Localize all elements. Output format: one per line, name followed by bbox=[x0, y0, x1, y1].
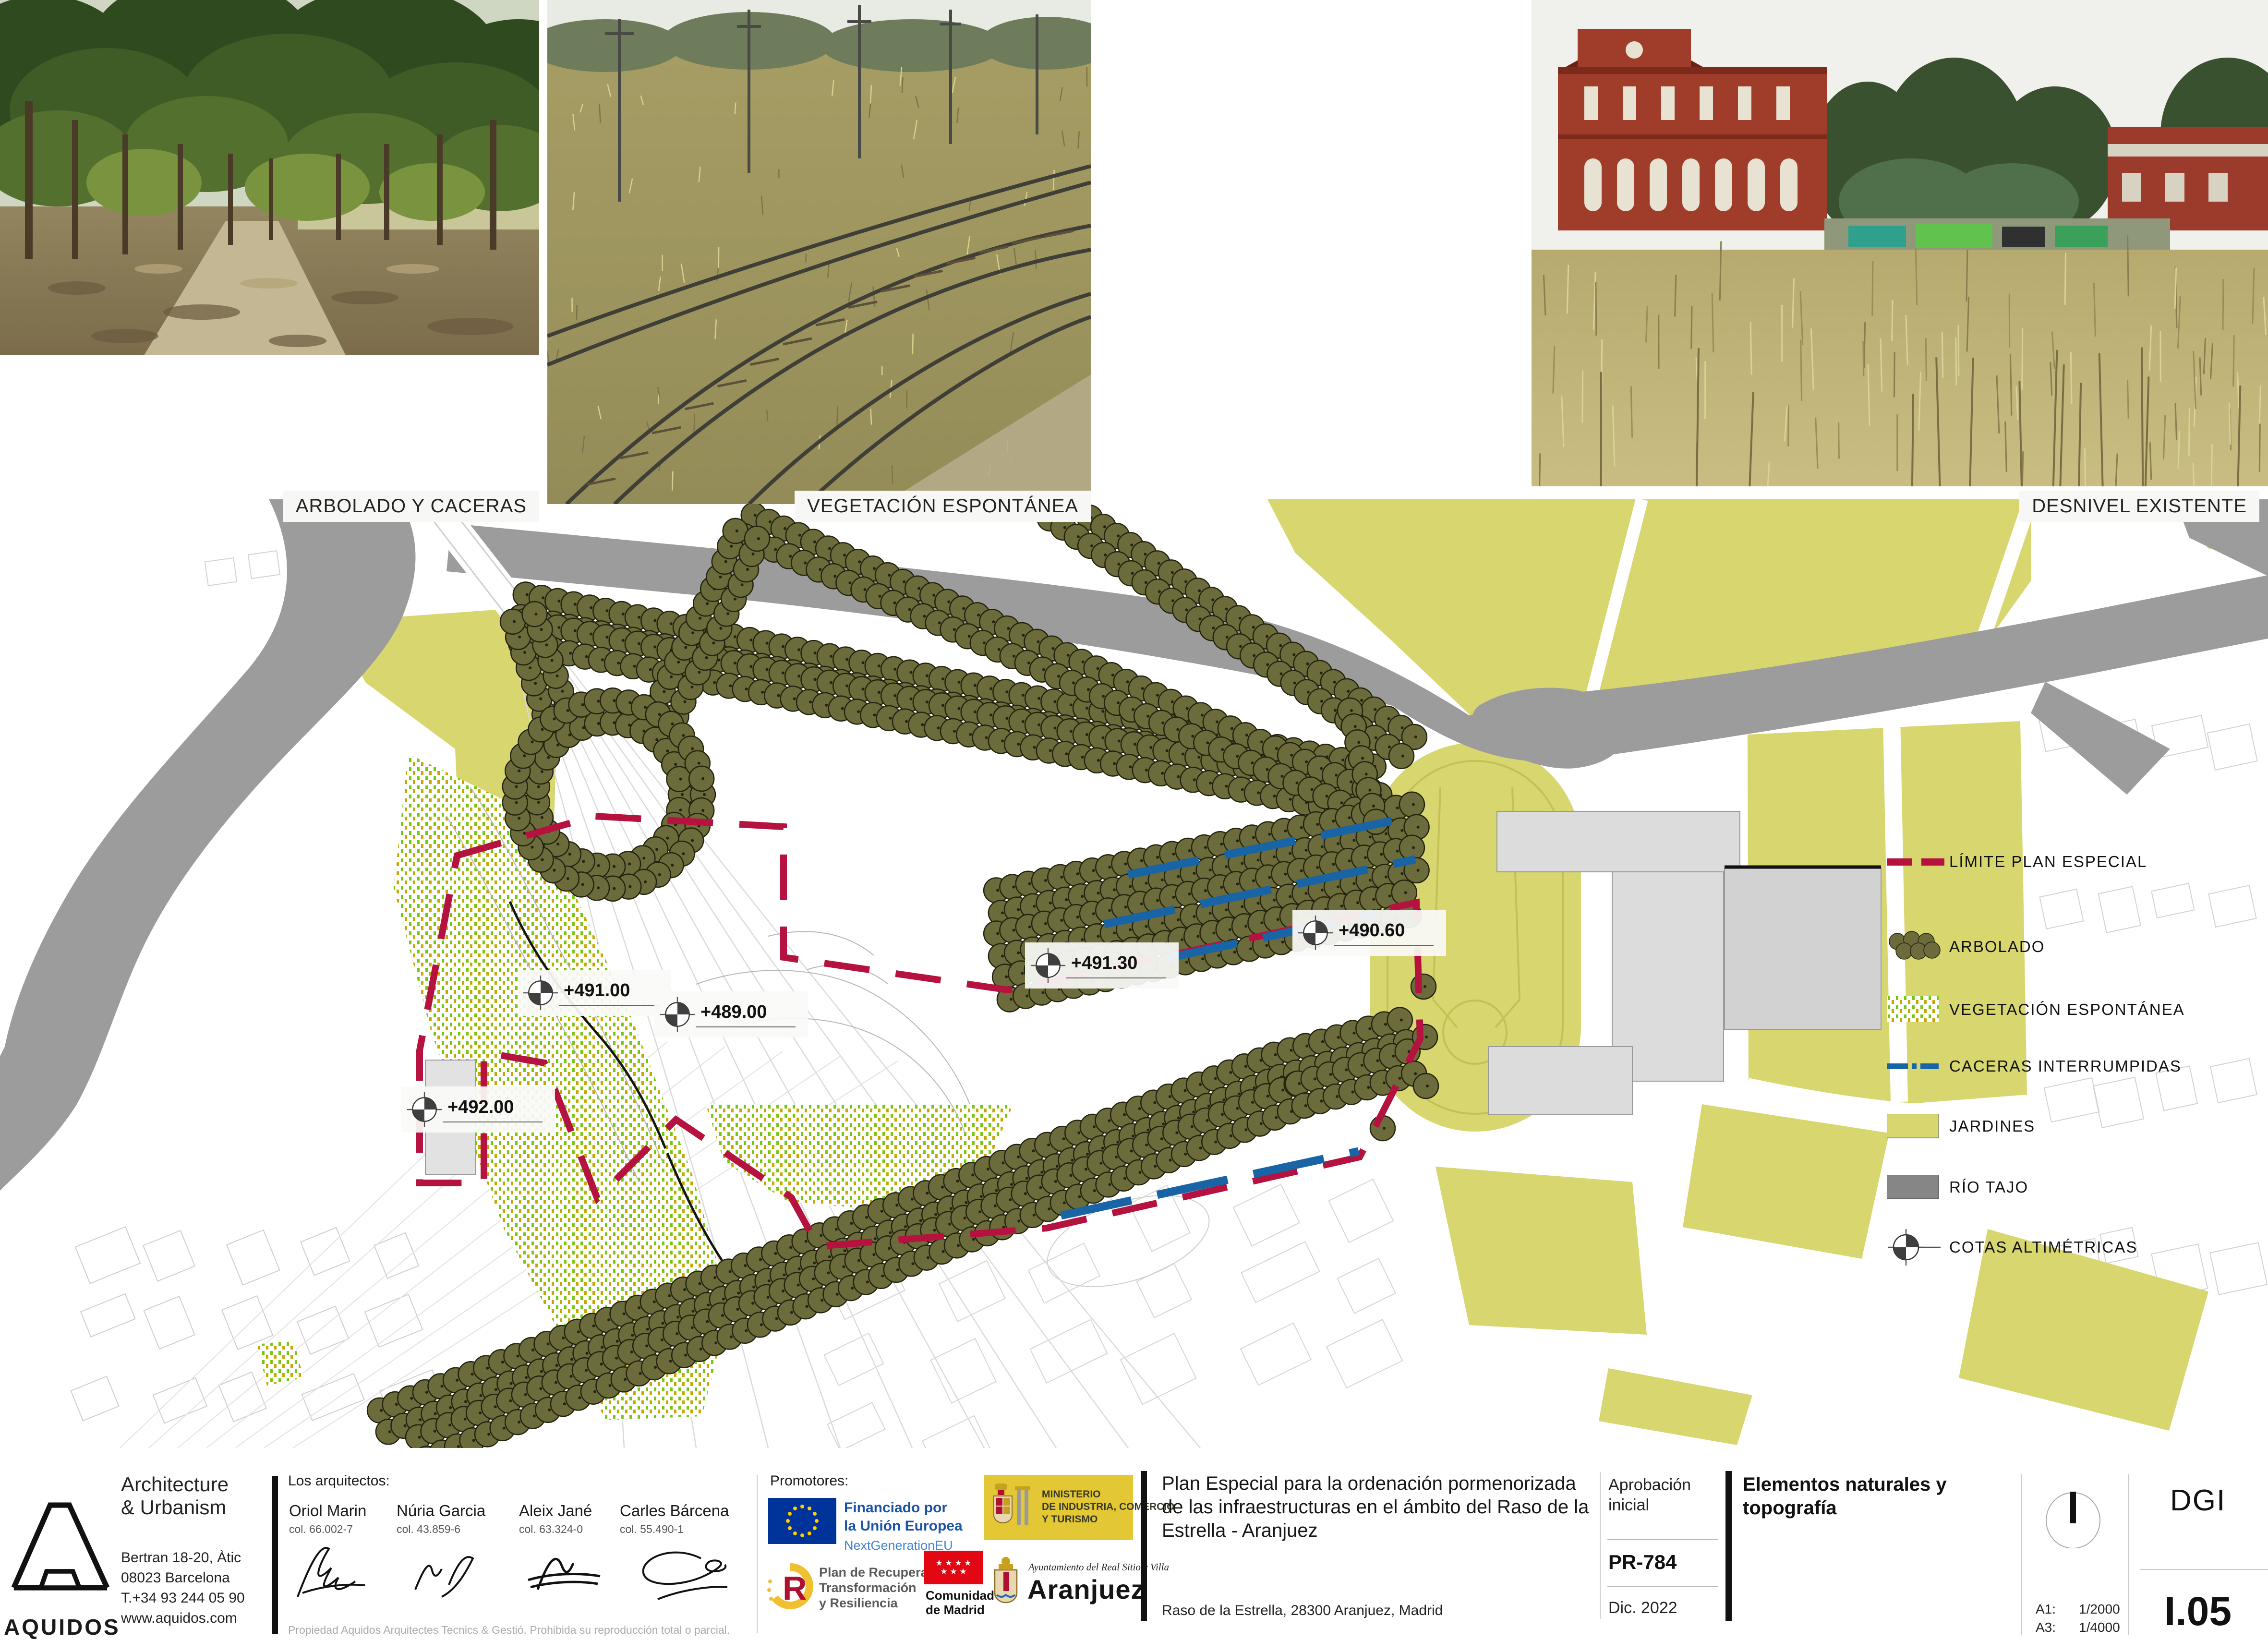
architect-college: col. 43.859-6 bbox=[397, 1523, 460, 1536]
vegetacion-swatch-icon bbox=[1887, 995, 1949, 1024]
scale-a3-label: A3: bbox=[2036, 1620, 2056, 1635]
legend-item-jardines: JARDINES bbox=[1887, 1107, 2035, 1146]
series-divider bbox=[2140, 1569, 2268, 1570]
aquidos-logo-icon bbox=[7, 1476, 110, 1620]
aranjuez-crest-icon bbox=[989, 1555, 1023, 1611]
photo-caption-vegetacion: VEGETACIÓN ESPONTÁNEA bbox=[795, 491, 1091, 522]
limite-swatch-icon bbox=[1887, 856, 1949, 868]
firm-phone: T.+34 93 244 05 90 bbox=[121, 1590, 245, 1606]
firm-address-2: 08023 Barcelona bbox=[121, 1570, 230, 1586]
photo-caption-arbolado: ARBOLADO Y CACERAS bbox=[283, 491, 539, 522]
photo-vegetacion-espontanea bbox=[547, 0, 1091, 504]
copyright-disclaimer: Propiedad Aquidos Arquitectes Tecnics & … bbox=[288, 1624, 730, 1637]
architect-college: col. 63.324-0 bbox=[519, 1523, 583, 1536]
comunidad-madrid-logo-icon: ★ ★ ★ ★★ ★ ★ bbox=[924, 1551, 983, 1584]
scale-a3-value: 1/4000 bbox=[2079, 1620, 2120, 1635]
series-code: DGI bbox=[2170, 1483, 2226, 1518]
project-title: Plan Especial para la ordenación pormeno… bbox=[1162, 1472, 1594, 1543]
ministry-line2: DE INDUSTRIA, COMERCIO bbox=[1042, 1501, 1175, 1513]
signature-icon bbox=[293, 1539, 384, 1606]
architect-name: Carles Bárcena bbox=[620, 1502, 729, 1520]
cota-symbol-icon bbox=[522, 975, 559, 1011]
madrid-line1: Comunidad bbox=[926, 1588, 994, 1603]
sheet-number: I.05 bbox=[2164, 1588, 2232, 1635]
signature-icon bbox=[523, 1546, 605, 1599]
status-divider-1 bbox=[1607, 1539, 1718, 1540]
firm-website[interactable]: www.aquidos.com bbox=[121, 1610, 237, 1627]
architect-college: col. 55.490-1 bbox=[620, 1523, 684, 1536]
jardines-swatch-icon bbox=[1887, 1114, 1949, 1139]
firm-tagline-1: Architecture bbox=[121, 1473, 229, 1496]
side-building bbox=[2108, 127, 2268, 230]
cota-symbol-icon bbox=[406, 1091, 443, 1128]
svg-text:R: R bbox=[783, 1569, 807, 1607]
divider-line-1 bbox=[757, 1475, 758, 1633]
approval-phase-line2: inicial bbox=[1608, 1496, 1649, 1515]
rio-swatch-icon bbox=[1887, 1175, 1949, 1200]
plan-sheet: ARBOLADO Y CACERAS VEGETACIÓN ESPONTÁNEA… bbox=[0, 0, 2268, 1640]
cota-492-00: +492.00 bbox=[401, 1086, 555, 1133]
cota-symbol-icon bbox=[1297, 915, 1334, 951]
project-address: Raso de la Estrella, 28300 Aranjuez, Mad… bbox=[1162, 1603, 1443, 1619]
cotas-swatch-icon bbox=[1887, 1228, 1949, 1266]
divider-bar-2 bbox=[1141, 1471, 1147, 1621]
ministry-line3: Y TURISMO bbox=[1042, 1513, 1098, 1526]
project-code: PR-784 bbox=[1608, 1551, 1677, 1574]
eu-funding-line1: Financiado por bbox=[844, 1500, 947, 1516]
scale-a1-label: A1: bbox=[2036, 1602, 2056, 1617]
architects-heading: Los arquitectos: bbox=[288, 1473, 390, 1489]
eu-flag-icon bbox=[768, 1498, 836, 1544]
title-block: AQUIDOS Architecture & Urbanism Bertran … bbox=[0, 1448, 2268, 1640]
architect-name: Núria Garcia bbox=[397, 1502, 485, 1520]
brand-name: AQUIDOS bbox=[4, 1614, 121, 1640]
plan-recuperacion-logo-icon: R bbox=[766, 1562, 814, 1612]
architect-college: col. 66.002-7 bbox=[289, 1523, 353, 1536]
photo-caption-desnivel: DESNIVEL EXISTENTE bbox=[2019, 491, 2259, 522]
north-arrow-icon bbox=[2043, 1489, 2103, 1548]
scale-a1-value: 1/2000 bbox=[2079, 1602, 2120, 1617]
signature-icon bbox=[408, 1544, 490, 1602]
eu-funding-line2: la Unión Europea bbox=[844, 1518, 963, 1534]
sheet-title: Elementos naturales y topografía bbox=[1743, 1473, 2012, 1520]
signature-icon bbox=[629, 1542, 735, 1609]
legend-item-caceras: CACERAS INTERRUMPIDAS bbox=[1887, 1047, 2182, 1085]
cota-491-00: +491.00 bbox=[518, 970, 671, 1016]
legend-item-cotas: COTAS ALTIMÉTRICAS bbox=[1887, 1228, 2137, 1266]
status-divider-2 bbox=[1607, 1586, 1718, 1587]
spain-coat-of-arms-icon bbox=[990, 1480, 1034, 1535]
divider-bar-1 bbox=[272, 1476, 278, 1634]
promoters-heading: Promotores: bbox=[770, 1473, 848, 1489]
cota-491-30: +491.30 bbox=[1025, 942, 1179, 989]
cota-symbol-icon bbox=[1030, 947, 1066, 984]
divider-bar-3 bbox=[1725, 1471, 1732, 1621]
architect-name: Aleix Jané bbox=[519, 1502, 592, 1520]
architect-name: Oriol Marin bbox=[289, 1502, 366, 1520]
photo-arbolado-caceras bbox=[0, 0, 539, 355]
madrid-line2: de Madrid bbox=[926, 1603, 985, 1617]
aranjuez-subtitle: Ayuntamiento del Real Sitio y Villa bbox=[1028, 1561, 1169, 1573]
issue-date: Dic. 2022 bbox=[1608, 1599, 1677, 1617]
legend-item-vegetacion: VEGETACIÓN ESPONTÁNEA bbox=[1887, 990, 2185, 1029]
plan-line2: Transformación bbox=[819, 1580, 917, 1595]
divider-line-3 bbox=[2021, 1474, 2022, 1635]
plan-line3: y Resiliencia bbox=[819, 1596, 898, 1611]
cota-symbol-icon bbox=[659, 996, 696, 1033]
legend-item-limite: LÍMITE PLAN ESPECIAL bbox=[1887, 843, 2147, 881]
ministry-line1: MINISTERIO bbox=[1042, 1488, 1101, 1501]
caceras-swatch-icon bbox=[1887, 1061, 1949, 1071]
firm-address-1: Bertran 18-20, Àtic bbox=[121, 1550, 241, 1566]
approval-phase-line1: Aprobación bbox=[1608, 1476, 1691, 1495]
cota-490-60: +490.60 bbox=[1292, 910, 1446, 956]
divider-line-2 bbox=[1600, 1472, 1601, 1619]
firm-tagline-2: & Urbanism bbox=[121, 1496, 226, 1519]
legend-item-rio: RÍO TAJO bbox=[1887, 1168, 2028, 1206]
cota-489-00: +489.00 bbox=[654, 991, 808, 1037]
legend-item-arbolado: ARBOLADO bbox=[1887, 928, 2045, 966]
divider-line-4 bbox=[2128, 1474, 2129, 1635]
aranjuez-name: Aranjuez bbox=[1027, 1574, 1145, 1605]
arbolado-swatch-icon bbox=[1887, 930, 1949, 964]
photo-desnivel-existente bbox=[1532, 0, 2268, 486]
